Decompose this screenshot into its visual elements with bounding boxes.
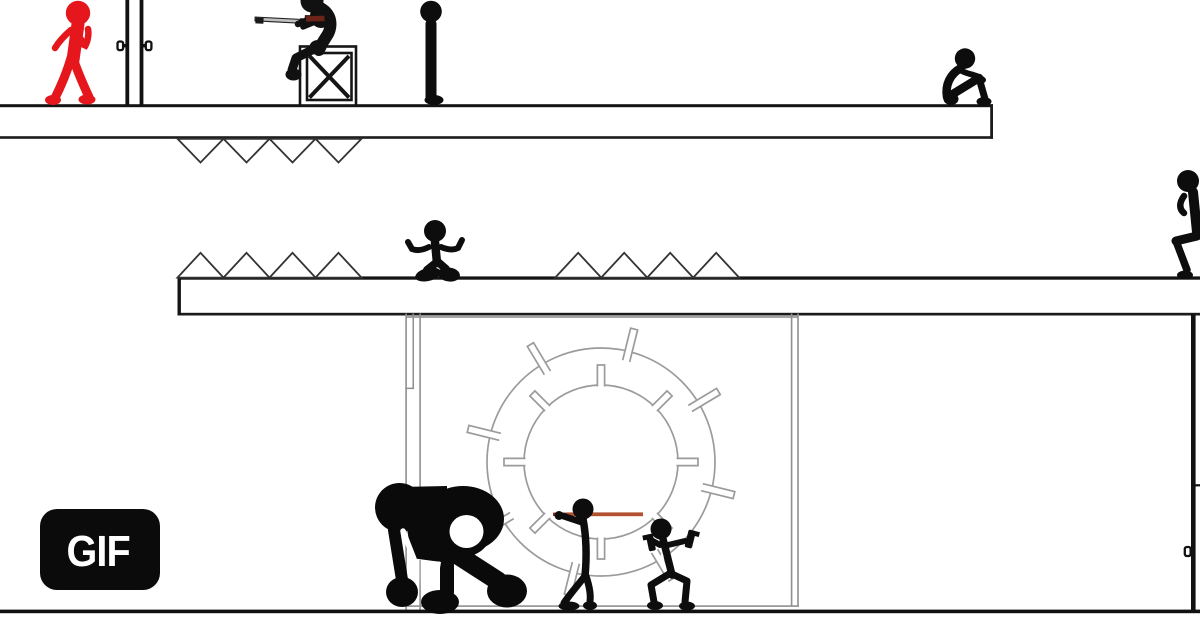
svg-text:GIF: GIF: [67, 526, 131, 575]
